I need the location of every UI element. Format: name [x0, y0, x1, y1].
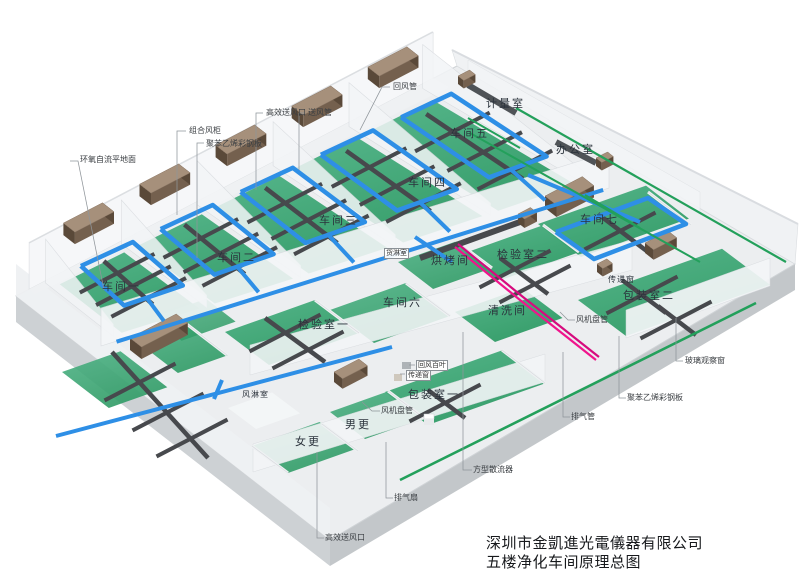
label-ps-panel-left: 聚苯乙烯彩钢板 [206, 138, 262, 149]
label-square-diffuser: 方型散流器 [473, 464, 513, 475]
label-hepa-outlet-bottom: 高效送风口 [325, 532, 365, 543]
title-company: 深圳市金凱進光電儀器有限公司 [486, 535, 703, 554]
label-fan-coil-right: 风机盘管 [576, 314, 608, 325]
room-workshop5: 车间五 [450, 125, 489, 141]
label-combined-ahu: 组合风柜 [189, 125, 221, 136]
label-glass-window: 玻璃观察窗 [685, 355, 725, 366]
label-supply-duct: 送风管 [308, 107, 332, 118]
cleanroom-isometric-diagram: 环氧自流平地面 组合风柜 聚苯乙烯彩钢板 高效送风口 送风管 回风管 风机盘管 … [0, 0, 800, 587]
room-workshop1: 车间一 [102, 278, 141, 294]
room-workshop2: 车间二 [217, 249, 256, 265]
label-hepa-outlet-top: 高效送风口 [266, 107, 306, 118]
room-inspection1: 检验室一 [298, 316, 350, 332]
room-workshop3: 车间三 [319, 212, 358, 228]
room-cleaning: 清洗间 [488, 302, 527, 318]
label-cargo-shower: 货淋室 [384, 248, 409, 259]
label-fan-coil-bottom: 风机盘管 [381, 405, 413, 416]
label-ps-panel-right: 聚苯乙烯彩钢板 [627, 392, 683, 403]
room-workshop6: 车间六 [383, 294, 422, 310]
title-block: 深圳市金凱進光電儀器有限公司 五楼净化车间原理总图 [486, 535, 703, 573]
room-air-shower: 风淋室 [242, 389, 269, 400]
room-male-change: 男更 [345, 416, 371, 432]
room-workshop4: 车间四 [408, 174, 447, 190]
label-pass-window-right: 传递窗 [608, 274, 635, 285]
label-return-duct: 回风管 [393, 81, 417, 92]
room-metering: 计量室 [486, 95, 525, 111]
label-exhaust-fan: 排气扇 [394, 492, 418, 503]
room-inspection2: 检验室二 [497, 246, 549, 262]
room-baking: 烘烤间 [431, 252, 470, 268]
room-female-change: 女更 [295, 433, 321, 449]
title-drawing: 五楼净化车间原理总图 [486, 554, 703, 573]
room-packing1: 包装室一 [408, 386, 460, 402]
room-office: 办公室 [556, 141, 595, 157]
label-exhaust-pipe: 排气管 [571, 411, 595, 422]
room-workshop7: 车间七 [580, 211, 619, 227]
room-packing2: 包装室二 [623, 287, 675, 303]
label-pass-window-left: 传递窗 [406, 370, 431, 381]
label-epoxy-floor: 环氧自流平地面 [80, 154, 136, 165]
